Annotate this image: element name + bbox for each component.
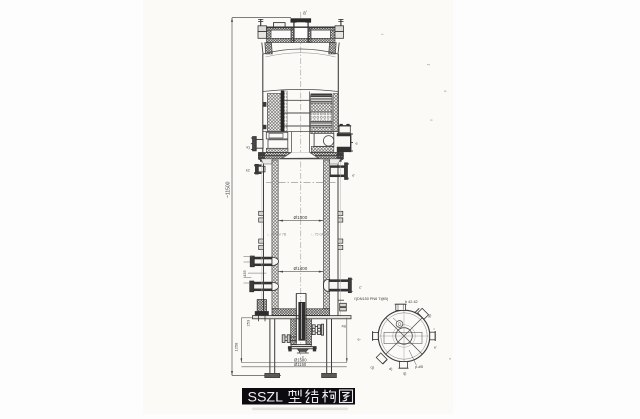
svg-text:435: 435: [242, 270, 247, 277]
svg-text:253: 253: [246, 319, 251, 326]
svg-text:k2: k2: [246, 169, 250, 173]
svg-text:ℓ(DN150 PN6 T@B): ℓ(DN150 PN6 T@B): [355, 297, 389, 301]
svg-text:b 42.42: b 42.42: [405, 300, 418, 304]
svg-text:Ø1150: Ø1150: [294, 362, 307, 367]
svg-text:~11500: ~11500: [226, 181, 232, 198]
svg-text:∟75 0A/ 7B: ∟75 0A/ 7B: [311, 233, 331, 237]
svg-text:c': c': [359, 285, 362, 290]
svg-text:e': e': [352, 174, 355, 178]
svg-text:≠B: ≠B: [342, 325, 347, 329]
svg-text:Ø1400: Ø1400: [294, 266, 308, 271]
svg-text:p-#B: p-#B: [415, 365, 423, 369]
svg-text:1258: 1258: [234, 342, 239, 352]
svg-text:SSZL: SSZL: [248, 390, 284, 406]
svg-text:∟75 0A/ 7B: ∟75 0A/ 7B: [267, 233, 287, 237]
svg-text:a': a': [303, 11, 307, 17]
svg-text:e': e': [434, 346, 437, 350]
svg-text:Ø1800: Ø1800: [294, 215, 308, 220]
